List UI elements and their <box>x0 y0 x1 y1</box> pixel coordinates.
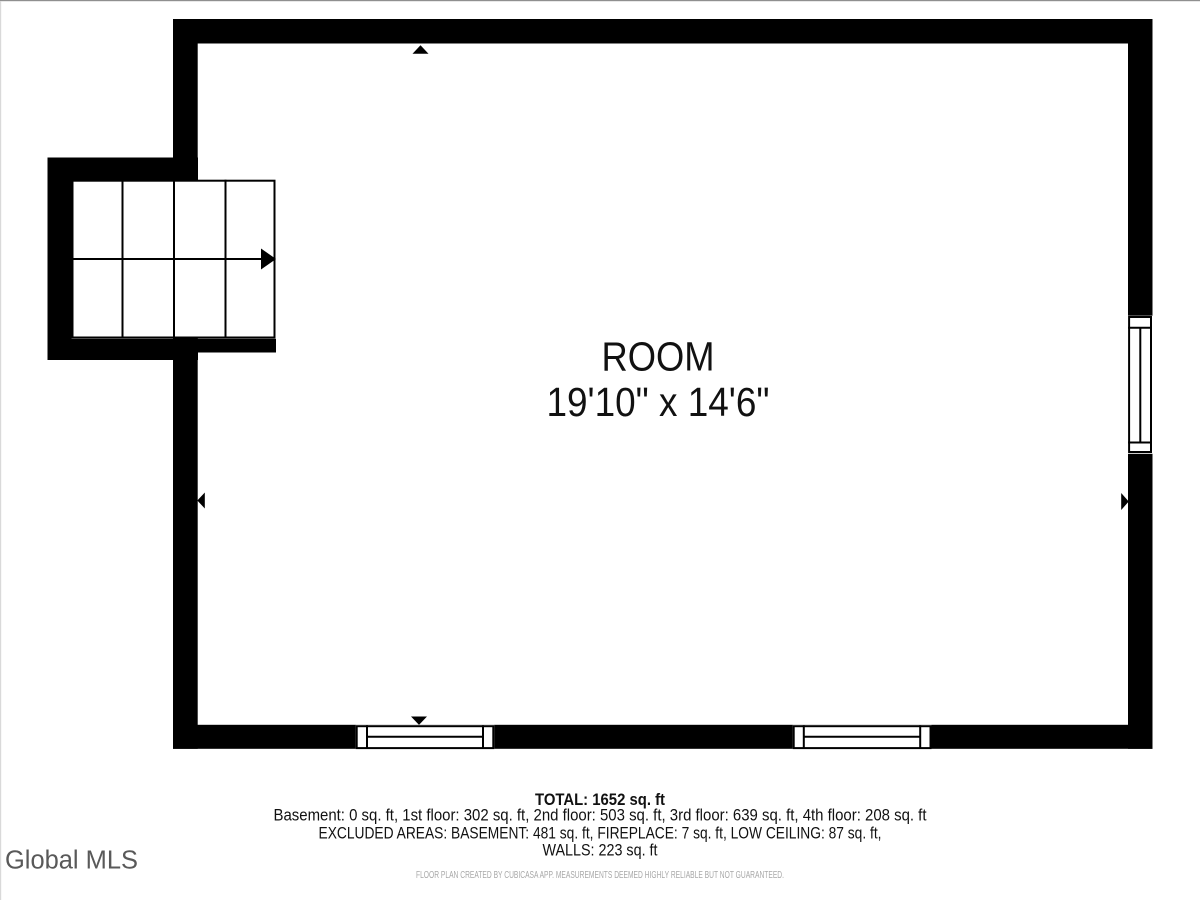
svg-text:WALLS: 223 sq. ft: WALLS: 223 sq. ft <box>543 841 658 860</box>
svg-text:Basement: 0 sq. ft, 1st floor:: Basement: 0 sq. ft, 1st floor: 302 sq. f… <box>274 806 927 825</box>
svg-text:19'10" x 14'6": 19'10" x 14'6" <box>547 379 770 425</box>
svg-text:FLOOR PLAN CREATED BY CUBICASA: FLOOR PLAN CREATED BY CUBICASA APP. MEAS… <box>416 870 784 881</box>
svg-text:ROOM: ROOM <box>602 334 715 380</box>
svg-text:Global MLS: Global MLS <box>5 846 138 874</box>
